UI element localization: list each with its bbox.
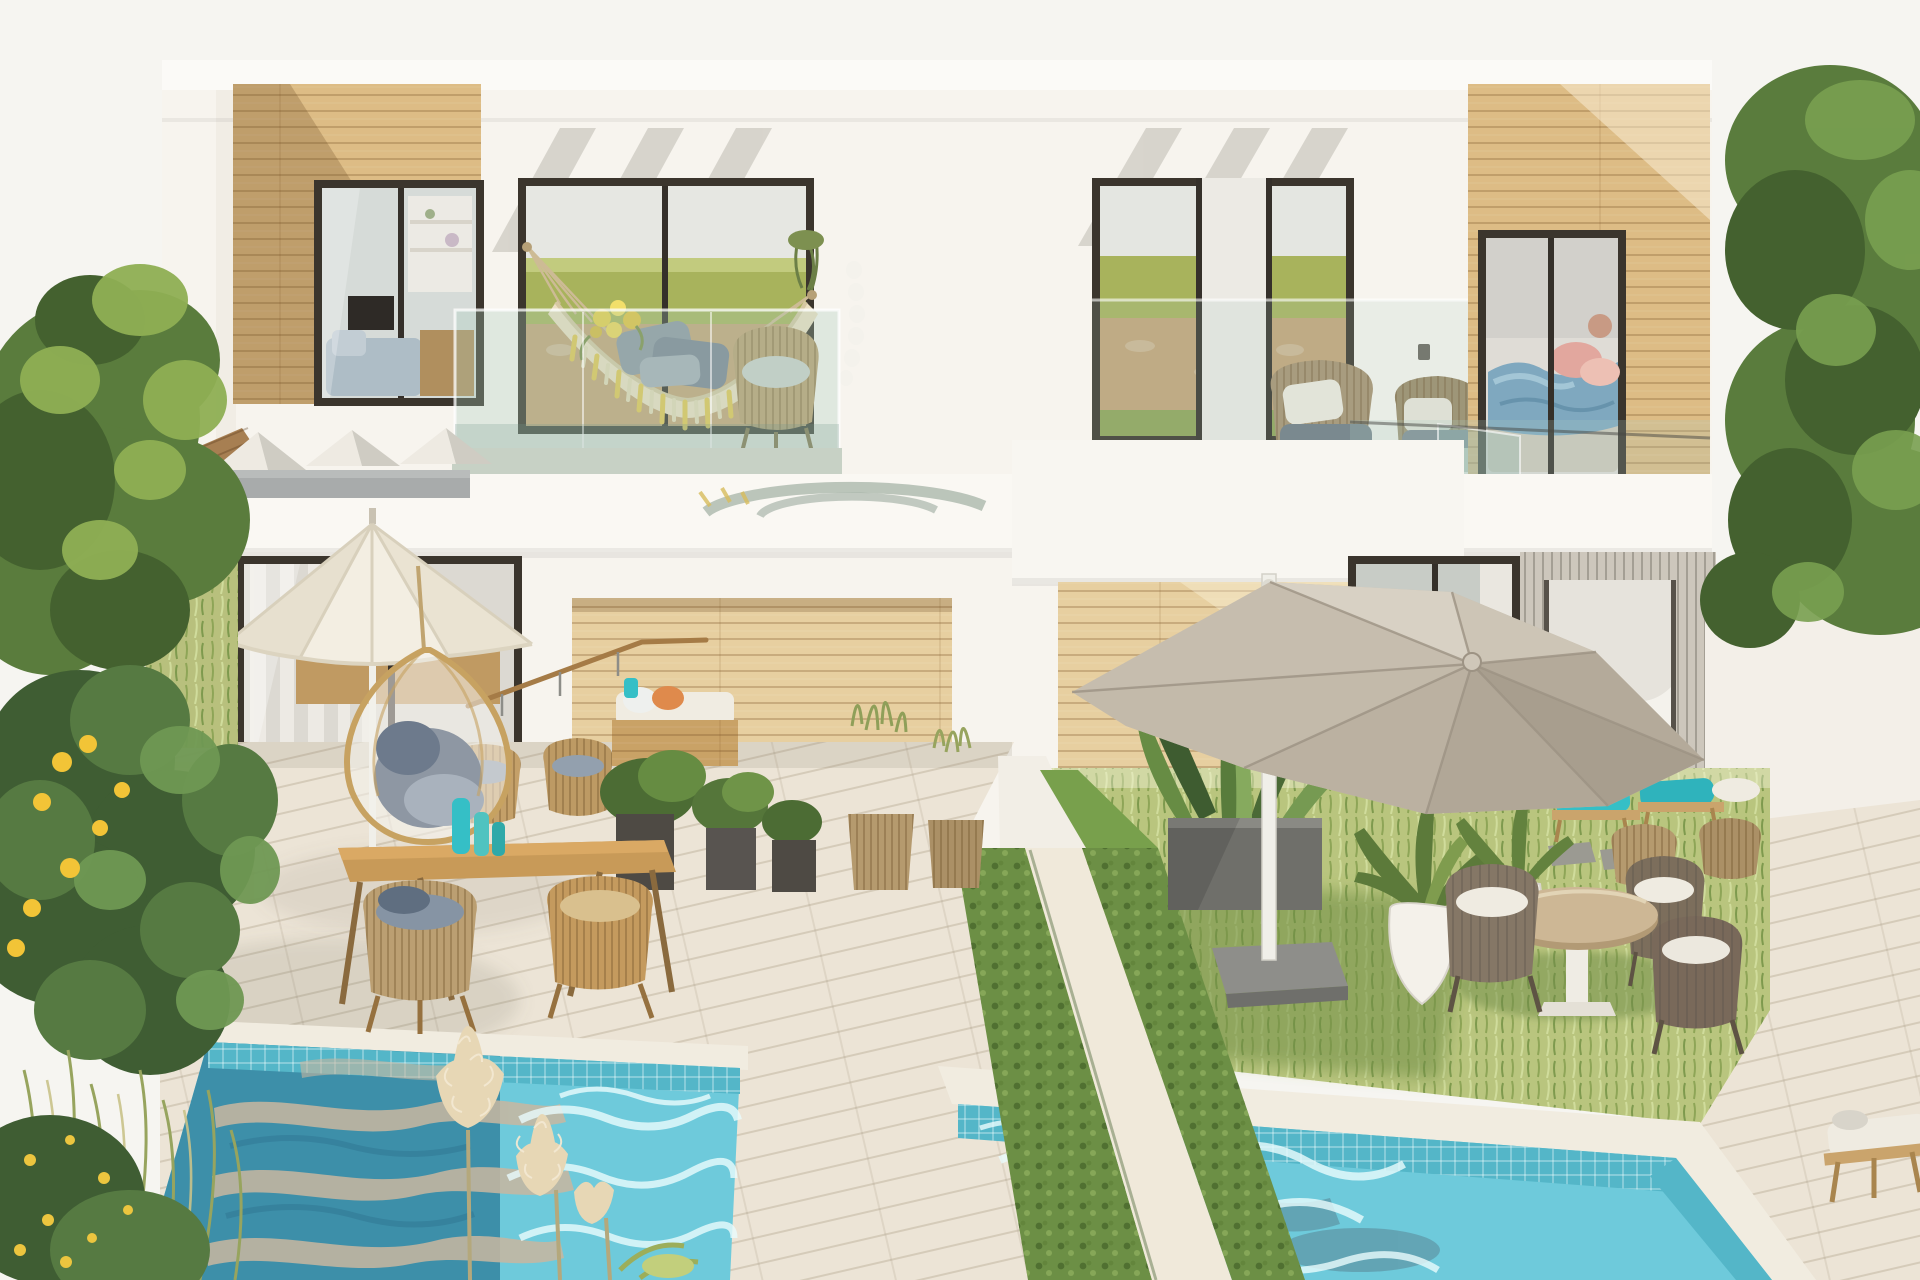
orange-pillow [652, 686, 684, 710]
person-head [1588, 314, 1612, 338]
teal-decor [624, 678, 638, 698]
villa-render [0, 0, 1920, 1280]
umbrella-base [1212, 942, 1348, 994]
balcony-glass-railing [452, 310, 842, 474]
villa-exterior-scene [0, 0, 1920, 1280]
left-pool [140, 1020, 748, 1280]
